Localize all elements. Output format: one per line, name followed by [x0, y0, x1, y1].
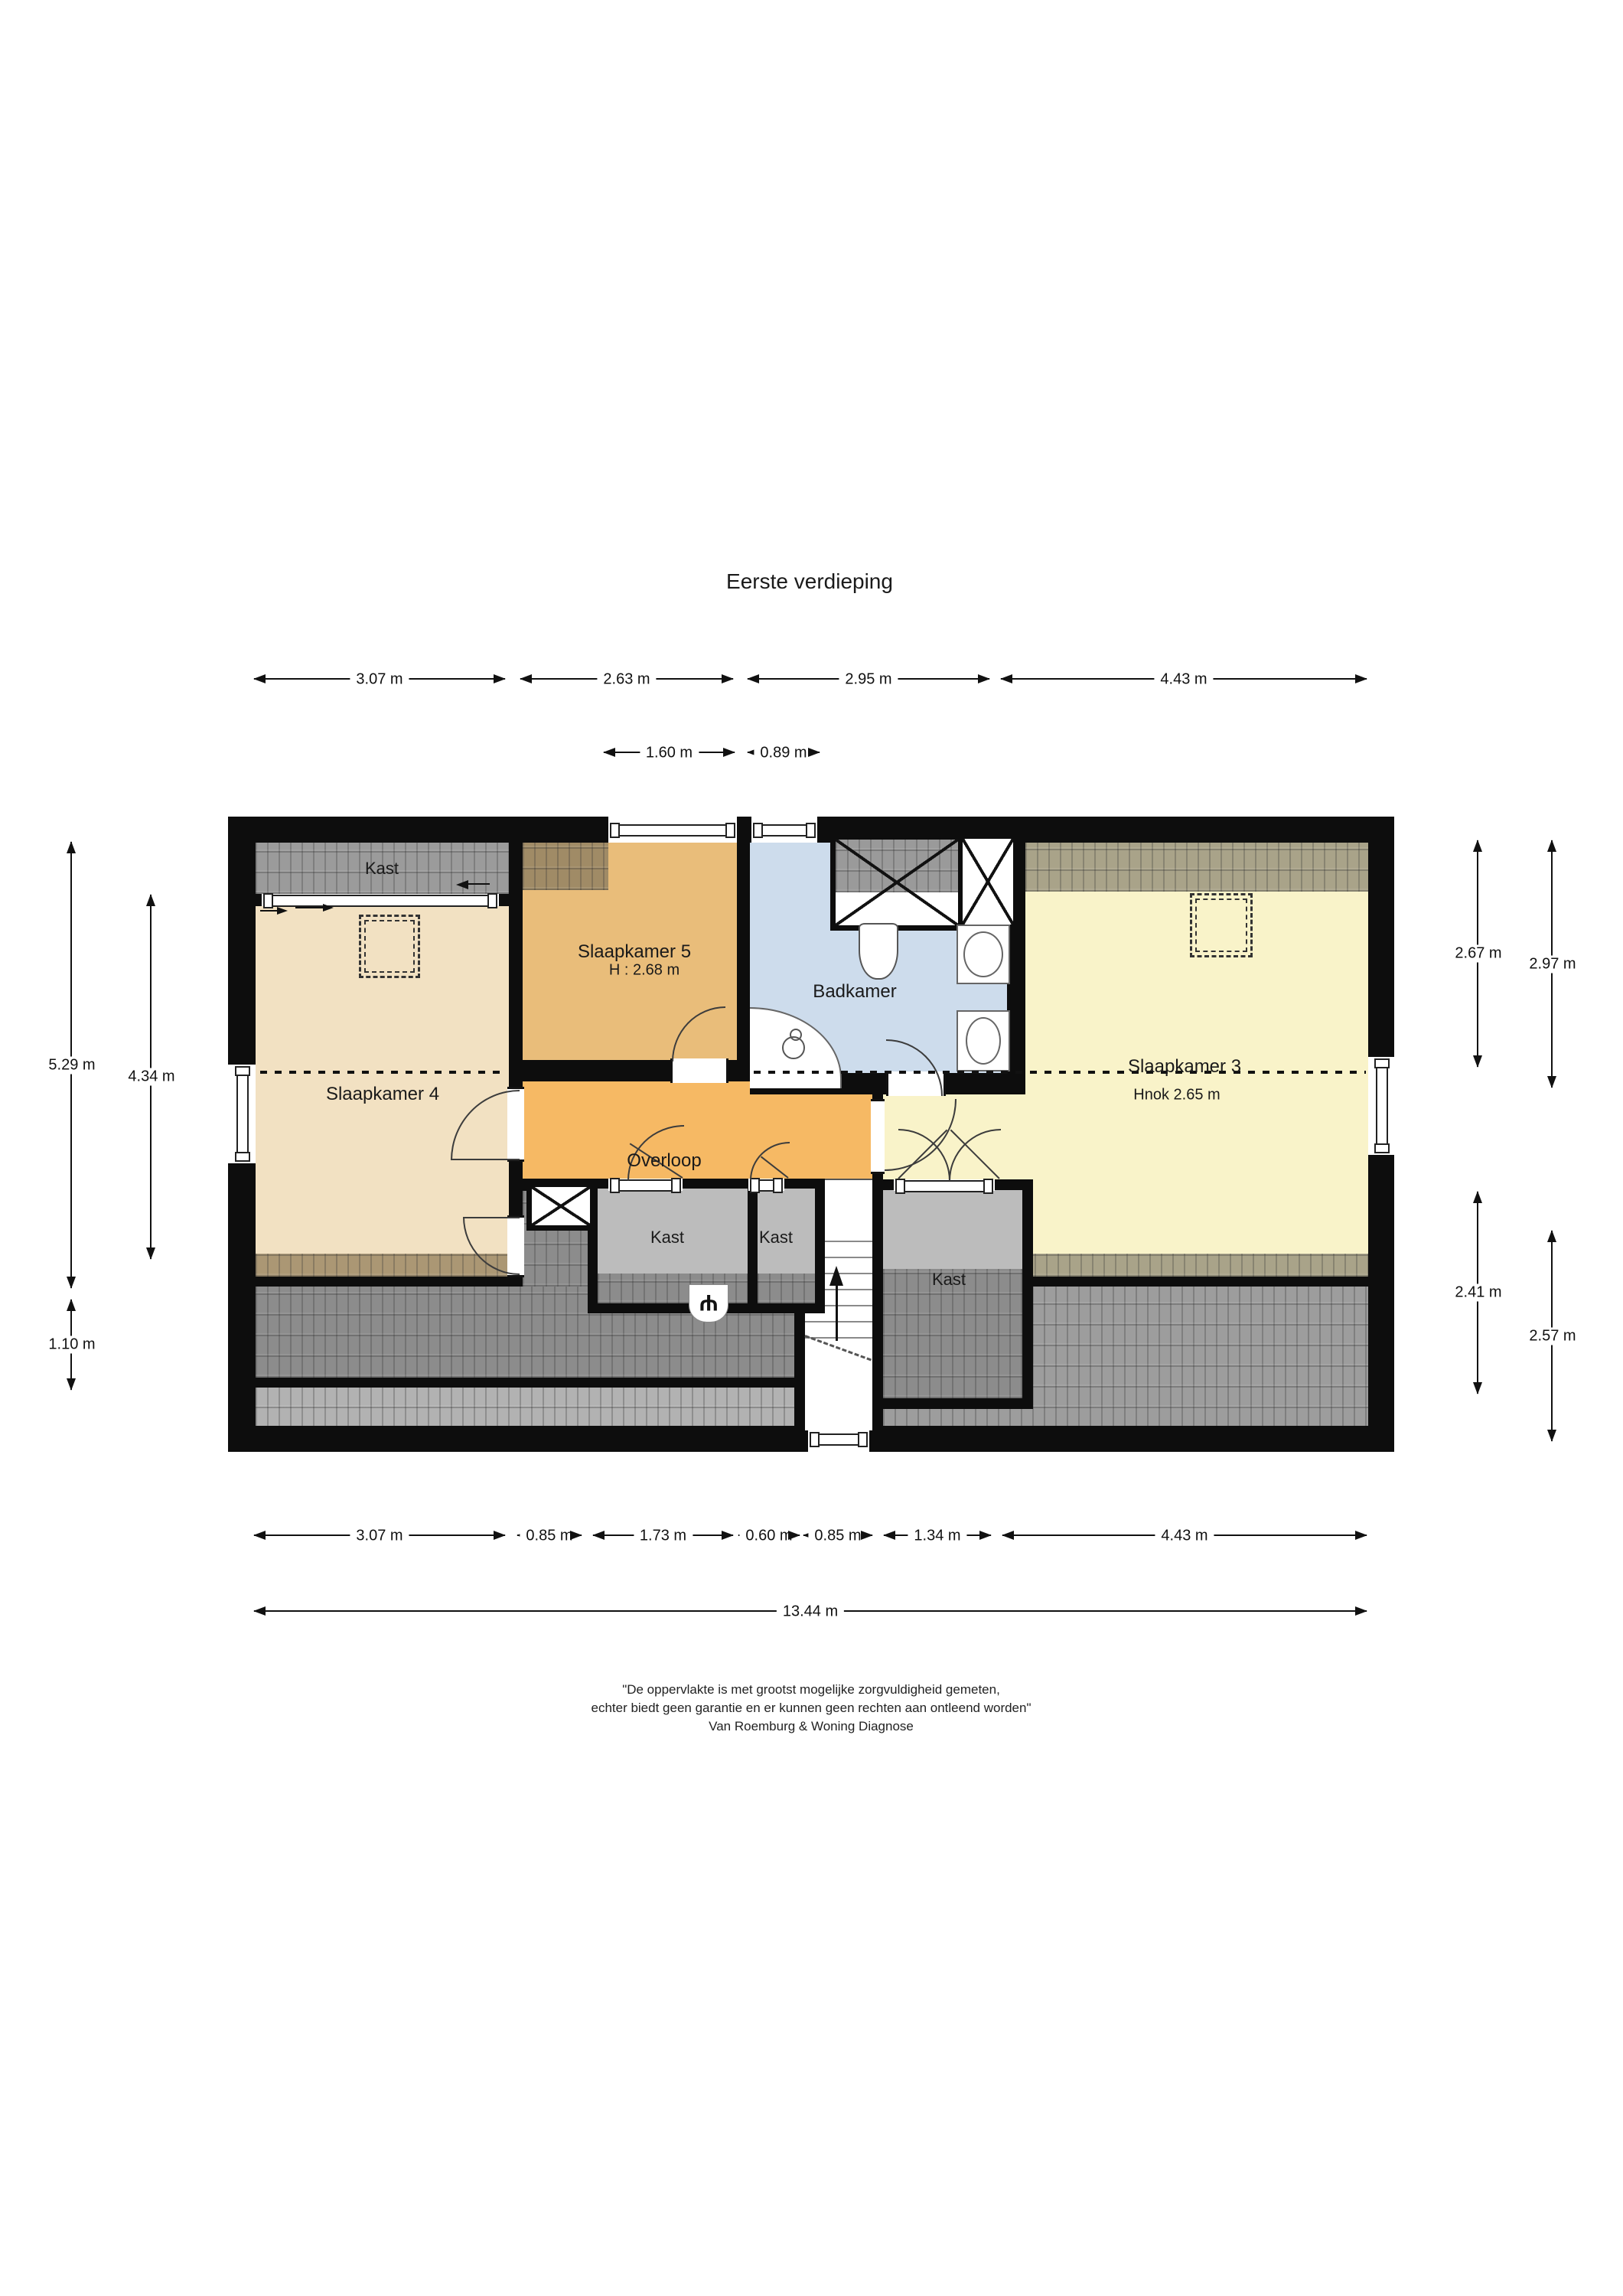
window-slaapkamer5	[608, 817, 737, 843]
direction-arrow-sk4a-icon	[277, 907, 288, 915]
label-slaapkamer3: Slaapkamer 3	[1128, 1056, 1241, 1078]
dim-bottom-3: 1.73 m	[593, 1534, 733, 1536]
dim-top-3: 2.95 m	[748, 678, 989, 680]
dim-bottom-2: 0.85 m	[517, 1534, 582, 1536]
window-slaapkamer4	[228, 1065, 256, 1163]
direction-arrow-sk4b-icon	[323, 904, 334, 912]
washbasin-round	[957, 925, 1010, 984]
disclaimer: "De oppervlakte is met grootst mogelijke…	[591, 1681, 1031, 1736]
washbasin-oval	[957, 1010, 1010, 1071]
mechanical-ventilation-unit: Ψ	[689, 1284, 728, 1322]
toilet-icon	[859, 923, 898, 980]
dim-bottom-4: 0.60 m	[738, 1534, 800, 1536]
label-closet-small: Kast	[759, 1228, 793, 1247]
closet-small-door	[748, 1179, 784, 1191]
disclaimer-line-1: "De oppervlakte is met grootst mogelijke…	[591, 1681, 1031, 1699]
shaft-x-icon	[963, 839, 1013, 925]
shaft-badkamer	[958, 834, 1018, 929]
direction-arrow-sk4b-shaft	[295, 907, 323, 908]
window-badkamer	[751, 817, 817, 843]
window-slaapkamer3	[1368, 1057, 1394, 1155]
label-closet-center: Kast	[650, 1228, 684, 1247]
dim-total-width: 13.44 m	[254, 1610, 1367, 1612]
label-kast-topleft: Kast	[365, 859, 399, 879]
duct-shaft	[526, 1182, 595, 1231]
door-opening-slaapkamer5	[670, 1058, 728, 1083]
label-closet-stairs: Kast	[932, 1270, 966, 1290]
slaapkamer3-roof-strip-top	[1025, 843, 1368, 892]
wall-roof-divider-left	[256, 1378, 794, 1388]
headroom-line-slaapkamer3	[754, 1071, 1366, 1074]
stair-arrow-shaft	[836, 1286, 838, 1341]
stair-up-arrow-icon	[829, 1266, 843, 1286]
dim-top-4: 4.43 m	[1001, 678, 1367, 680]
label-slaapkamer5: Slaapkamer 5	[578, 941, 691, 963]
label-slaapkamer4: Slaapkamer 4	[326, 1084, 439, 1105]
room-overloop	[523, 1081, 883, 1179]
direction-arrow-sk4a-shaft	[260, 910, 277, 912]
dim-left-3: 1.10 m	[70, 1300, 72, 1390]
disclaimer-line-3: Van Roemburg & Woning Diagnose	[591, 1717, 1031, 1736]
closet-small-roof-hatch	[758, 1274, 815, 1303]
closet-center-roof-hatch	[598, 1274, 758, 1303]
dim-bottom-7: 4.43 m	[1002, 1534, 1367, 1536]
direction-arrow-kast-shaft	[468, 883, 490, 885]
slaapkamer4-roof-strip	[256, 1254, 509, 1277]
corner-bath-tap-icon	[790, 1029, 802, 1041]
floor-plan-page: Eerste verdieping	[0, 0, 1623, 2296]
dim-top-2: 2.63 m	[520, 678, 733, 680]
washbasin-round-bowl-icon	[963, 931, 1003, 977]
headroom-line-slaapkamer4	[260, 1071, 505, 1074]
dim-right-4: 2.57 m	[1551, 1231, 1553, 1441]
page-title: Eerste verdieping	[726, 569, 893, 594]
label-badkamer: Badkamer	[813, 981, 896, 1003]
wall-slaapkamer5-badkamer	[737, 843, 750, 1081]
slaapkamer5-roof-corner	[523, 843, 608, 890]
direction-arrow-kast-icon	[456, 880, 468, 889]
ventilation-icon: Ψ	[699, 1285, 718, 1319]
duct-shaft-x-icon	[532, 1187, 590, 1225]
slaapkamer3-roof-strip-bottom	[1012, 1254, 1368, 1277]
closet-stairs-door	[894, 1179, 995, 1191]
label-slaapkamer3-height: Hnok 2.65 m	[1133, 1087, 1220, 1104]
shower-x-icon	[836, 840, 958, 925]
dim-right-3: 2.41 m	[1477, 1192, 1478, 1394]
label-slaapkamer5-height: H : 2.68 m	[609, 962, 680, 980]
dim-top-window2: 0.89 m	[748, 752, 820, 753]
dim-right-1: 2.67 m	[1477, 840, 1478, 1067]
closet-center-door	[608, 1179, 683, 1191]
dim-left-1: 5.29 m	[70, 842, 72, 1288]
shower	[830, 834, 963, 931]
roof-window-slaapkamer4	[359, 915, 420, 978]
wall-slaapkamer3-roof	[1012, 1277, 1368, 1287]
dim-top-1: 3.07 m	[254, 678, 505, 680]
dim-right-2: 2.97 m	[1551, 840, 1553, 1088]
label-overloop: Overloop	[627, 1150, 701, 1172]
washbasin-oval-bowl-icon	[966, 1017, 1001, 1065]
window-kast-tl	[262, 894, 499, 906]
roof-window-slaapkamer3	[1190, 893, 1253, 957]
wall-slaapkamer4-roof	[256, 1277, 523, 1287]
door-opening-slaapkamer3	[871, 1099, 885, 1174]
disclaimer-line-2: echter biedt geen garantie en er kunnen …	[591, 1699, 1031, 1717]
dim-left-2: 4.34 m	[150, 895, 152, 1259]
dim-bottom-5: 0.85 m	[803, 1534, 872, 1536]
closet-stairs	[872, 1179, 1033, 1409]
dim-bottom-6: 1.34 m	[884, 1534, 991, 1536]
dim-bottom-1: 3.07 m	[254, 1534, 505, 1536]
dim-top-window1: 1.60 m	[604, 752, 735, 753]
roof-area-left-light	[256, 1388, 794, 1429]
